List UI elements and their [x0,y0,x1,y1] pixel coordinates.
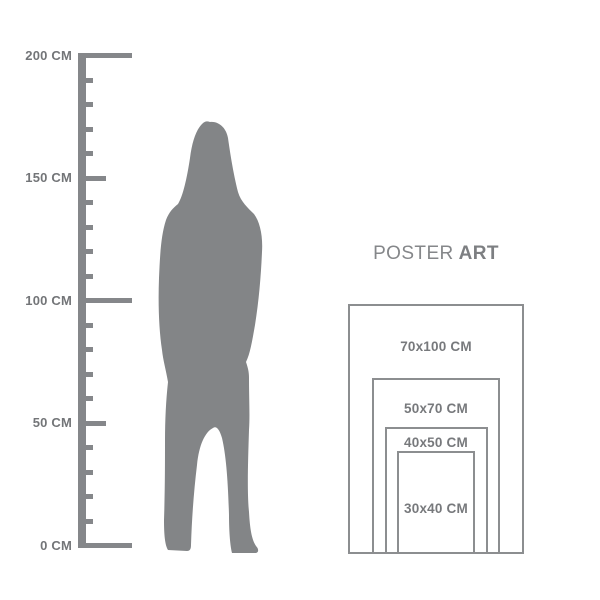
poster-size-label-40x50: 40x50 CM [387,435,486,451]
brand-title: POSTERART [348,243,524,265]
poster-size-label-70x100: 70x100 CM [350,339,523,355]
brand-word-art: ART [459,243,499,264]
poster-size-label-30x40: 30x40 CM [399,501,474,517]
brand-word-poster: POSTER [373,243,454,264]
poster-size-guide: 200 CM150 CM100 CM50 CM0 CM POSTERART 70… [0,0,600,600]
poster-rect-30x40: 30x40 CM [397,451,476,554]
poster-size-label-50x70: 50x70 CM [374,401,498,417]
